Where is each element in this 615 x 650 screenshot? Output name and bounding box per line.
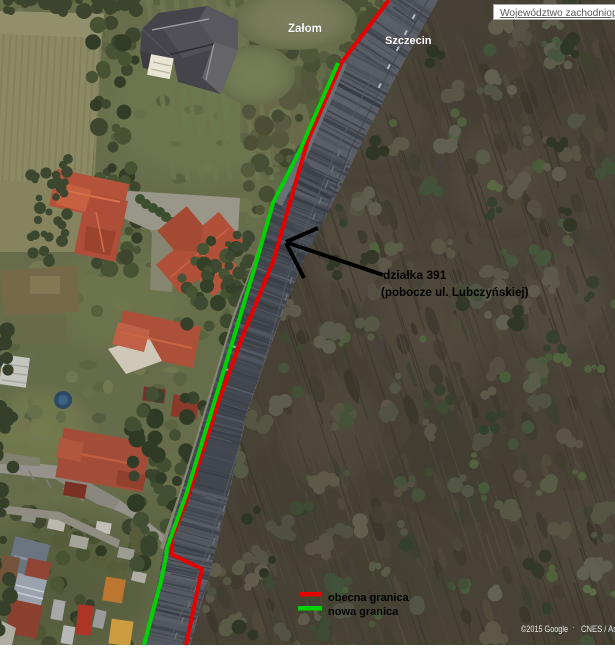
svg-text:obecna granica: obecna granica	[328, 592, 410, 604]
svg-text:©2015 Google: ©2015 Google	[521, 624, 568, 635]
svg-text:CNES / As: CNES / As	[581, 624, 615, 635]
svg-text:(pobocze ul. Lubczyńskiej): (pobocze ul. Lubczyńskiej)	[381, 286, 529, 299]
svg-text:działka 391: działka 391	[383, 268, 447, 282]
svg-text:·: ·	[572, 623, 575, 632]
svg-text:Województwo zachodniopom: Województwo zachodniopom	[500, 8, 615, 19]
svg-text:Załom: Załom	[288, 23, 322, 35]
svg-text:nowa granica: nowa granica	[328, 606, 399, 618]
svg-text:Szczecin: Szczecin	[385, 35, 432, 47]
